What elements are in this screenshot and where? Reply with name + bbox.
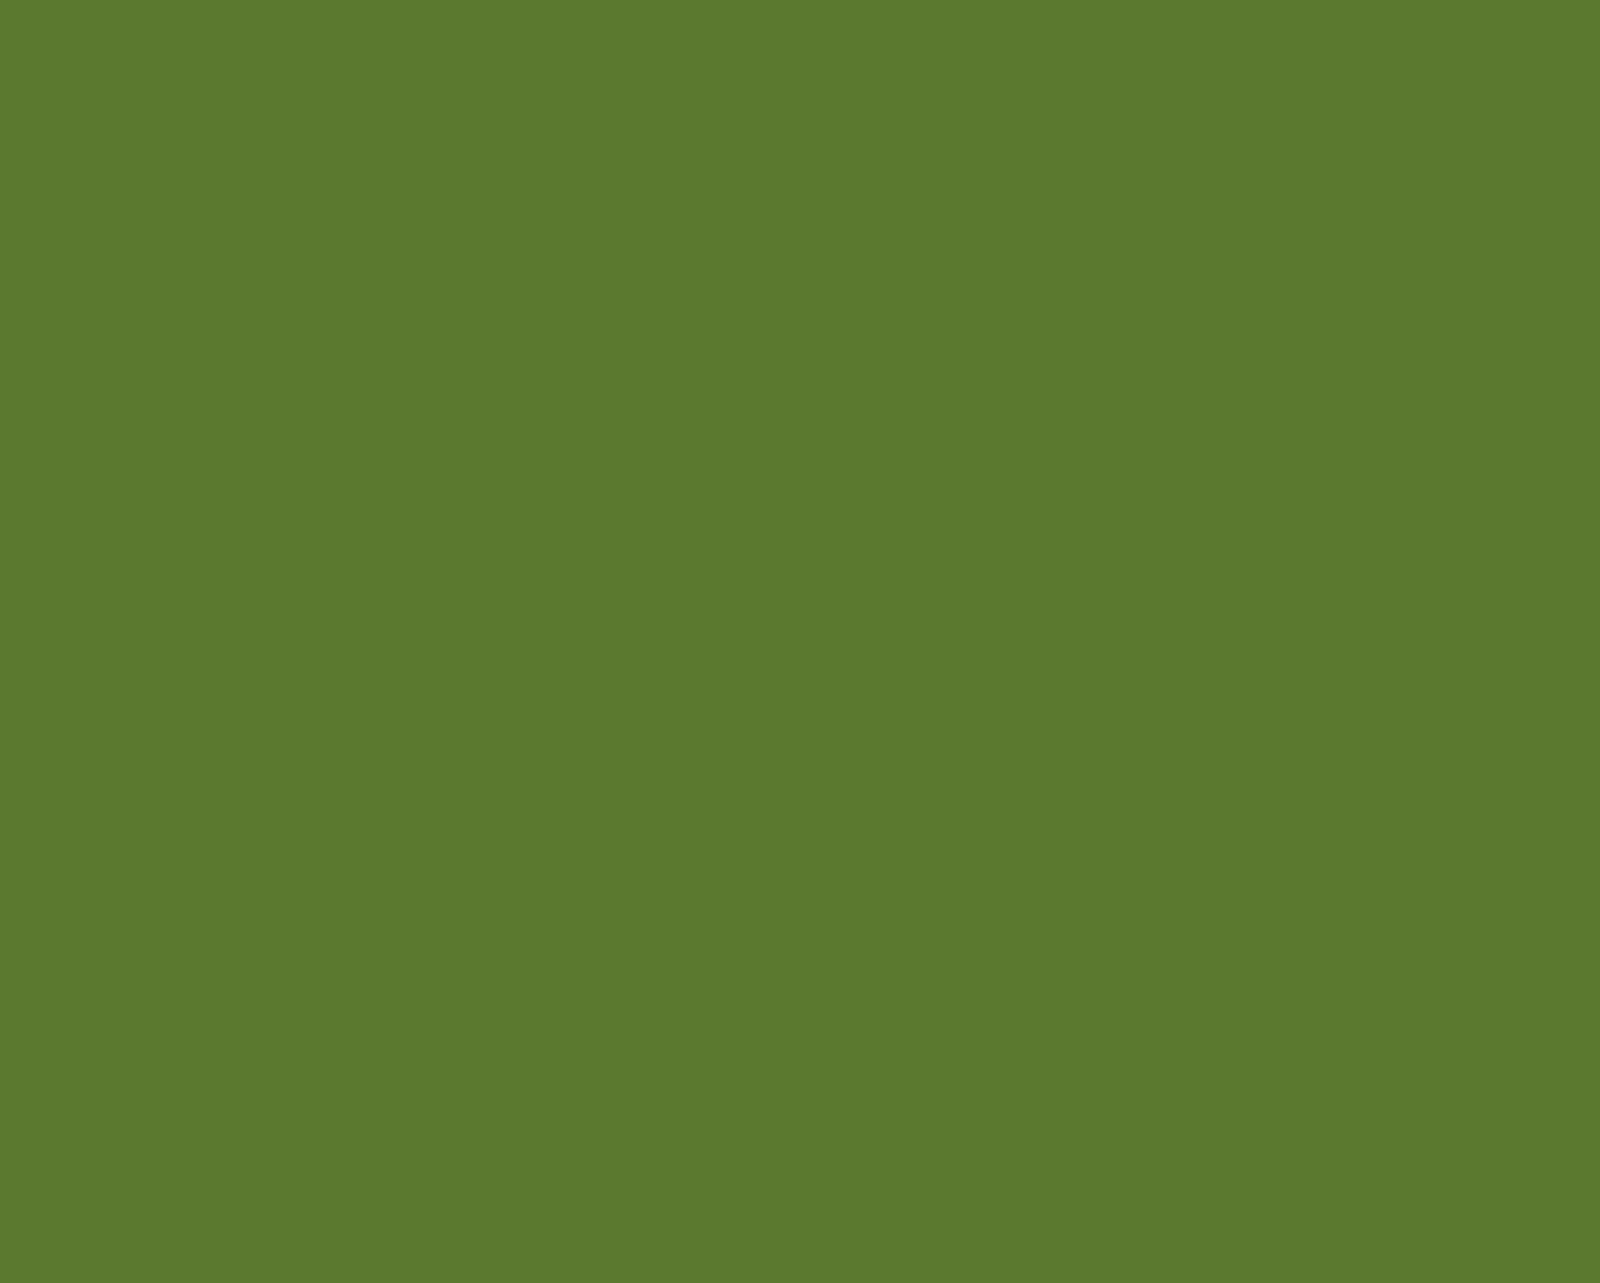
- aerial-site-plan-rendering: [0, 0, 1600, 1283]
